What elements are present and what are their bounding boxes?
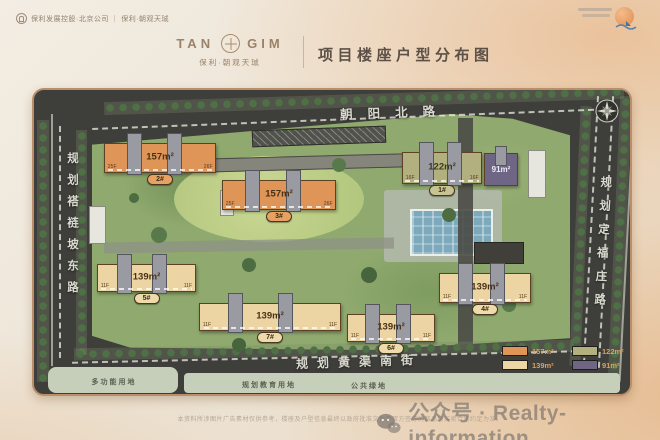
watermark-text: 公众号 · Realty-information (408, 397, 660, 440)
unit-area-label: 139m² (440, 282, 530, 293)
floor-count: 26F (323, 201, 332, 206)
brand-lockup: TAN GIM 保利·朝观天珹 (160, 34, 300, 68)
land-label-education: 规划教育用地 (224, 380, 314, 390)
clubhouse-building (474, 242, 524, 264)
building-5: 11F 11F 139m² 5# (97, 264, 196, 292)
building-6: 11F 11F 139m² 6# (347, 314, 435, 342)
unit-area-label: 139m² (98, 272, 195, 283)
floor-count: 16F (469, 175, 478, 180)
legend-swatch-157 (502, 346, 528, 356)
lane-marking (59, 126, 61, 358)
building-number-badge: 7# (257, 332, 283, 343)
tree-row (569, 106, 591, 366)
compass-icon (594, 98, 620, 124)
brand-subtitle: 保利·朝观天珹 (160, 57, 300, 68)
stamp-boat-icon (614, 19, 640, 31)
balcony-strip (204, 327, 336, 329)
stamp-text-line (582, 14, 610, 17)
developer-caption: 保利发展控股·北京公司 ｜ 保利·朝观天珹 (16, 13, 169, 24)
unit-area-label: 157m² (223, 189, 335, 200)
building-number-badge: 3# (266, 211, 292, 222)
brand-seal-icon (221, 34, 240, 53)
road-edge-line (51, 114, 53, 366)
site-plan-map: 朝阳北路 规划褡裢坡东路 规划定福庄路 规划黄渠南街 多功能用地 规划教育用地 … (32, 88, 632, 396)
page-title: 项目楼座户型分布图 (318, 44, 494, 65)
small-building (89, 206, 106, 244)
small-building (528, 150, 546, 198)
building-number-badge: 5# (134, 293, 160, 304)
legend-label: 157m² (532, 347, 554, 356)
land-label-multi-use: 多功能用地 (62, 377, 166, 387)
building-3: 25F 26F 157m² 3# (222, 180, 336, 210)
balcony-strip (101, 288, 192, 290)
floor-count: 16F (406, 175, 415, 180)
legend-item: 139m² (502, 360, 564, 370)
brand-name-right: GIM (247, 36, 284, 51)
balcony-strip (108, 169, 211, 171)
header-divider (303, 36, 304, 68)
building-7: 11F 11F 139m² 7# (199, 303, 341, 331)
building-1: 16F 16F 122m² 1# (402, 152, 482, 184)
unit-area-label: 139m² (348, 322, 434, 333)
developer-caption-text: 保利发展控股·北京公司 ｜ 保利·朝观天珹 (31, 14, 169, 24)
road-label-north: 朝阳北路 (340, 100, 451, 123)
floor-count: 26F (203, 164, 212, 169)
road-label-east: 规划定福庄路 (590, 176, 613, 318)
legend-label: 91m² (602, 361, 620, 370)
legend-label: 122m² (602, 347, 624, 356)
road-label-south: 规划黄渠南街 (296, 351, 423, 372)
floor-count: 11F (423, 333, 431, 338)
building-91sqm: 91m² (484, 153, 518, 186)
floor-count: 25F (108, 164, 117, 169)
legend-item: 91m² (572, 360, 632, 370)
road-label-west: 规划褡裢坡东路 (64, 152, 80, 303)
unit-area-label: 122m² (403, 162, 481, 173)
balcony-strip (405, 180, 478, 182)
legend-label: 139m² (532, 361, 554, 370)
legend-item: 122m² (572, 346, 632, 356)
poly-logo-icon (16, 13, 27, 24)
legend-swatch-122 (572, 346, 598, 356)
watermark: 公众号 · Realty-information (376, 397, 660, 440)
wechat-icon (376, 412, 401, 436)
building-4: 11F 11F 139m² 4# (439, 273, 531, 303)
floor-count: 11F (329, 322, 337, 327)
balcony-strip (443, 299, 528, 301)
building-number-badge: 4# (472, 304, 498, 315)
legend-swatch-139 (502, 360, 528, 370)
balcony-strip (351, 338, 432, 340)
legend-swatch-91 (572, 360, 598, 370)
land-label-public-green: 公共绿地 (334, 381, 404, 391)
corner-stamp (578, 5, 644, 43)
floor-count: 25F (226, 201, 235, 206)
tree-cluster (129, 193, 139, 203)
brand-name: TAN GIM (160, 34, 300, 53)
floor-count: 11F (351, 333, 359, 338)
unit-area-label: 157m² (105, 152, 215, 163)
building-number-badge: 1# (429, 185, 455, 196)
unit-area-label: 91m² (485, 164, 517, 173)
floor-count: 11F (203, 322, 211, 327)
brand-name-left: TAN (176, 36, 214, 51)
floor-count: 11F (519, 294, 527, 299)
floor-count: 11F (101, 283, 109, 288)
unit-area-label: 139m² (200, 311, 340, 322)
floor-count: 11F (443, 294, 451, 299)
area-legend: 157m² 122m² 139m² 91m² (502, 346, 632, 370)
tree-row (37, 120, 49, 382)
floor-count: 11F (184, 283, 192, 288)
building-2: 25F 26F 157m² 2# (104, 143, 216, 173)
poster-page: 保利发展控股·北京公司 ｜ 保利·朝观天珹 TAN GIM 保利·朝观天珹 项目… (0, 0, 660, 440)
stamp-text-line (578, 8, 612, 11)
balcony-strip (226, 206, 331, 208)
legend-item: 157m² (502, 346, 564, 356)
building-number-badge: 2# (147, 174, 173, 185)
